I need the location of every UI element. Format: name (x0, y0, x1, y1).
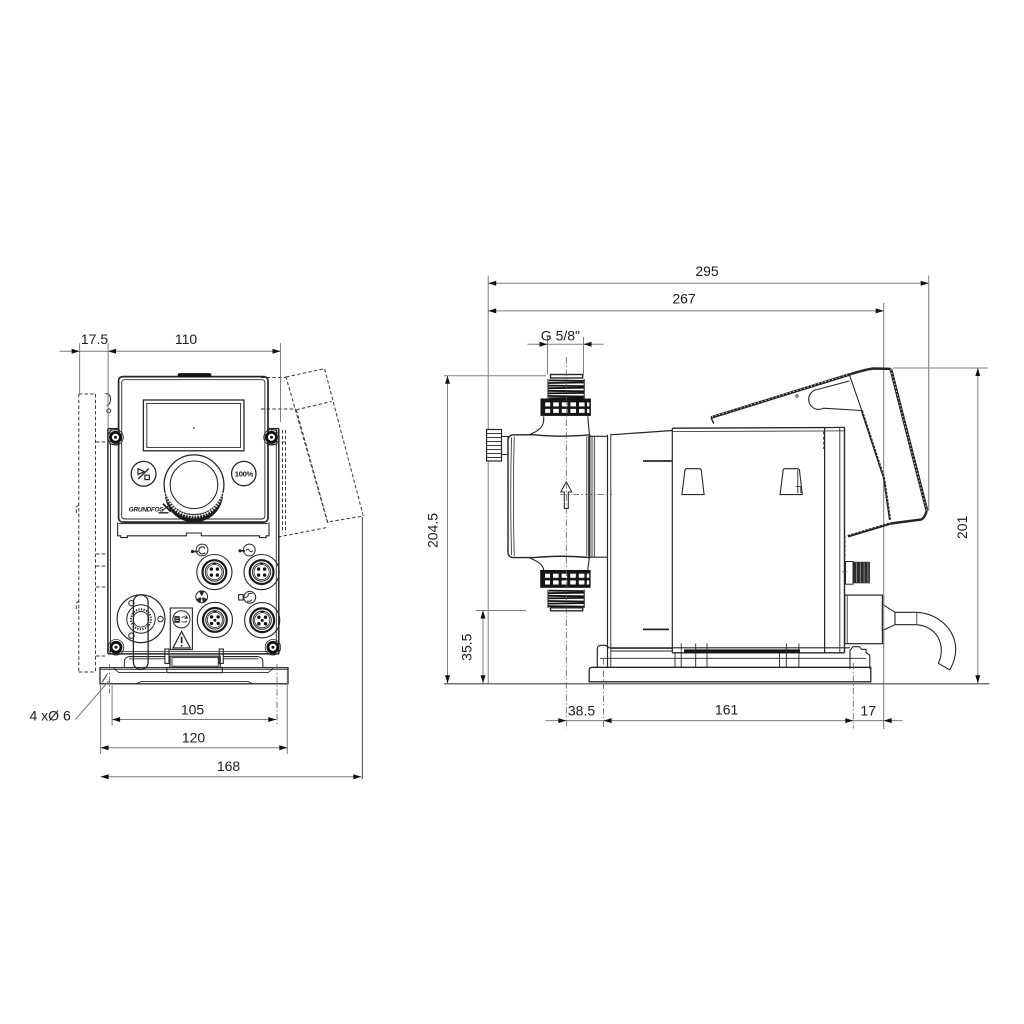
svg-text:105: 105 (181, 702, 205, 718)
svg-text:110: 110 (175, 331, 198, 347)
svg-text:17: 17 (860, 702, 876, 718)
svg-text:267: 267 (672, 291, 696, 307)
svg-text:35.5: 35.5 (458, 633, 474, 660)
svg-text:38.5: 38.5 (568, 702, 595, 718)
svg-text:295: 295 (695, 263, 719, 279)
svg-text:204.5: 204.5 (425, 513, 441, 548)
svg-text:4 xØ 6: 4 xØ 6 (30, 708, 71, 724)
svg-text:168: 168 (217, 758, 241, 774)
svg-text:17.5: 17.5 (81, 331, 108, 347)
svg-text:G 5/8": G 5/8" (541, 328, 580, 344)
svg-text:100%: 100% (235, 470, 254, 479)
svg-text:161: 161 (715, 701, 739, 717)
svg-text:120: 120 (182, 730, 206, 746)
svg-text:201: 201 (954, 515, 970, 539)
